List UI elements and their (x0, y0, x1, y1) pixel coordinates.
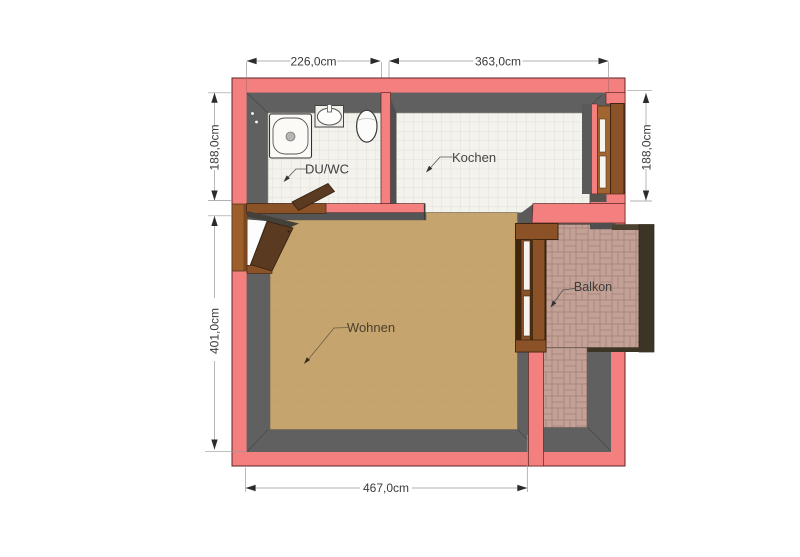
svg-text:363,0cm: 363,0cm (475, 55, 521, 69)
svg-text:188,0cm: 188,0cm (640, 124, 654, 170)
svg-text:Balkon: Balkon (574, 280, 612, 294)
svg-text:401,0cm: 401,0cm (208, 308, 222, 354)
svg-text:188,0cm: 188,0cm (208, 124, 222, 170)
svg-text:DU/WC: DU/WC (305, 162, 349, 177)
svg-text:226,0cm: 226,0cm (290, 55, 336, 69)
svg-text:Kochen: Kochen (452, 150, 496, 165)
svg-text:Wohnen: Wohnen (347, 320, 395, 335)
svg-text:467,0cm: 467,0cm (363, 481, 409, 495)
